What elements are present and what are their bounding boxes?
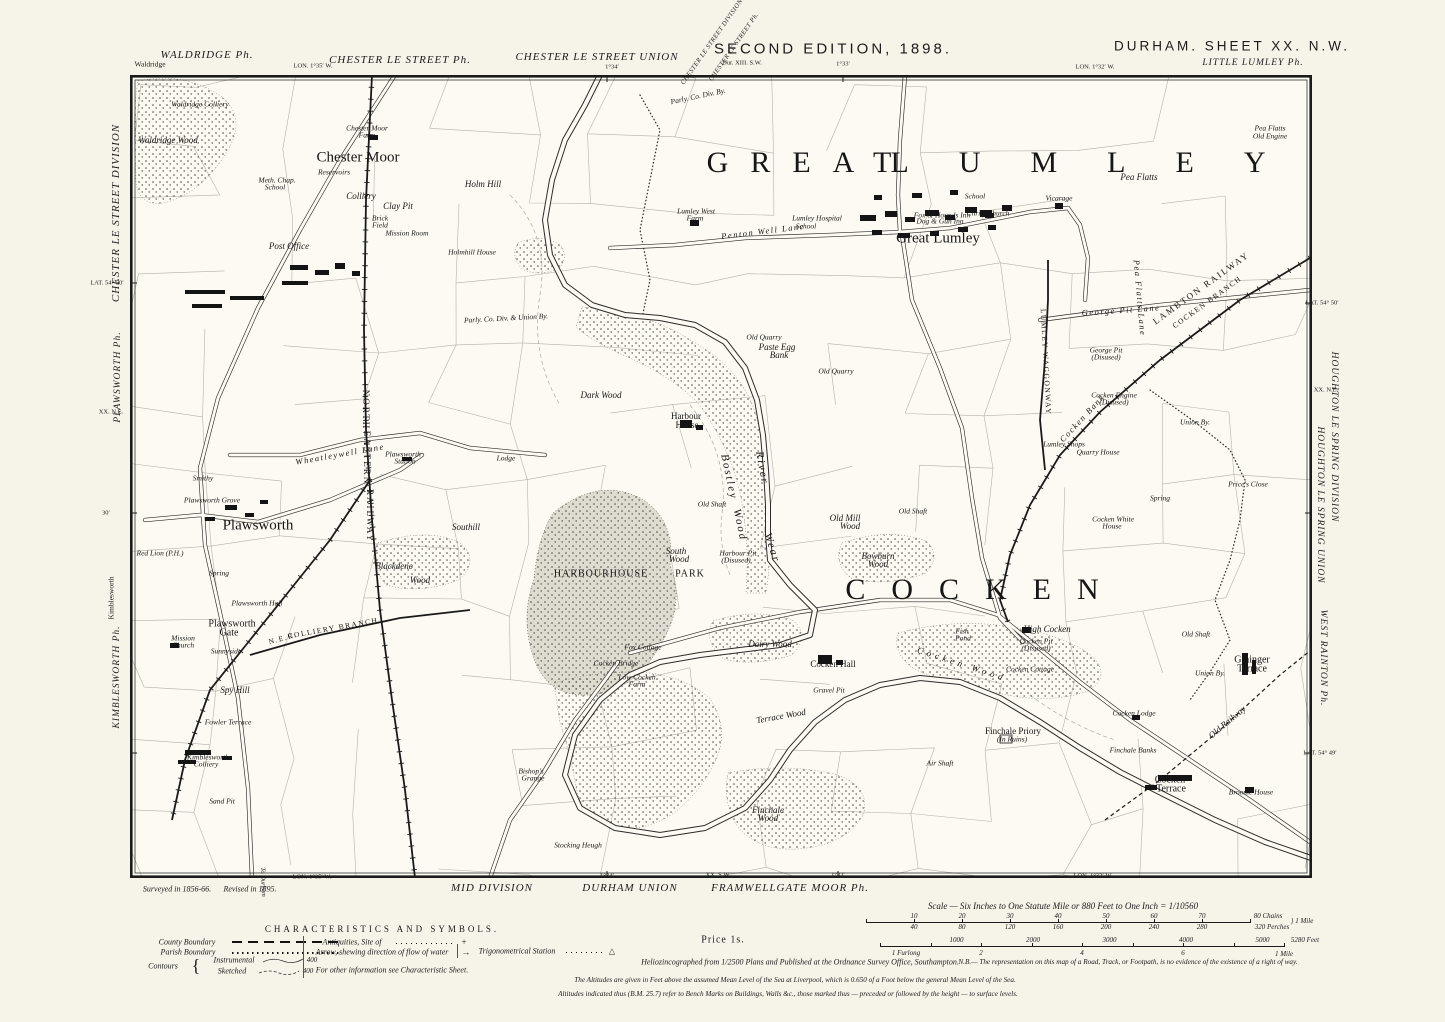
sheet-title: DURHAM. SHEET XX. N.W.: [1114, 39, 1350, 54]
graticule-ticks: [130, 75, 1312, 878]
legend-instrumental-label: Instrumental: [214, 956, 255, 965]
price-label: Price 1s.: [701, 935, 744, 946]
legend-antiquities-leader: [396, 943, 456, 944]
legend-contour-value-1: 400: [307, 956, 318, 964]
scale-label: 3000: [1103, 936, 1117, 944]
margin-left-tick-30: 30′: [102, 510, 110, 517]
margin-little-lumley: LITTLE LUMLEY Ph.: [1202, 58, 1303, 68]
scale-label: 30: [1007, 912, 1014, 920]
map-linework: [130, 75, 1312, 878]
scale-tick: [981, 943, 982, 947]
margin-chester-ph: CHESTER LE STREET Ph.: [329, 54, 471, 66]
scale-tick: [1133, 943, 1134, 947]
margin-adjoining-sheet: Dur. XIII. S.W.: [722, 60, 762, 67]
scale-label: 50: [1103, 912, 1110, 920]
footer-sheet-sw: XX. S.W.: [705, 872, 730, 879]
imprint-altitudes-1: The Altitudes are given in Feet above th…: [574, 976, 1016, 984]
scale-label: } 1 Mile: [1291, 917, 1314, 925]
roads-fill: [145, 75, 1310, 878]
margin-left-lat-top: LAT. 54° 50′: [90, 280, 123, 287]
scale-tick: [1082, 943, 1083, 947]
scale-label: 2: [979, 949, 983, 957]
scale-label: 160: [1053, 923, 1064, 931]
margin-waldridge-small: Waldridge: [134, 60, 165, 69]
legend-arrow-label: Arrow, shewing direction of flow of wate…: [316, 948, 449, 957]
margin-lon-right-top: LON. 1°32′ W.: [1075, 64, 1114, 71]
legend-antiquities-icon: +: [461, 937, 466, 947]
legend-contours-label: Contours: [148, 962, 178, 971]
footer-durham-union: DURHAM UNION: [582, 882, 677, 894]
scale-label: 4000: [1179, 936, 1193, 944]
scale-tick: [880, 943, 881, 947]
scale-tick: [1284, 943, 1285, 947]
legend-divider-1: [303, 936, 304, 978]
margin-chester-union: CHESTER LE STREET UNION: [515, 51, 678, 63]
scale-tick: [1250, 919, 1251, 923]
scale-tick: [866, 919, 867, 923]
map-border-outer: [131, 76, 1310, 876]
legend-title: CHARACTERISTICS AND SYMBOLS.: [265, 924, 499, 934]
margin-left-division: CHESTER LE STREET DIVISION: [110, 124, 122, 302]
scale-label: 80: [959, 923, 966, 931]
margin-left-sheet-ne: XX. N.E.: [99, 409, 124, 416]
scale-label: 5000: [1256, 936, 1270, 944]
scale-tick: [1234, 943, 1235, 947]
margin-waldridge-ph: WALDRIDGE Ph.: [161, 49, 254, 61]
legend-sketched-label: Sketched: [218, 967, 246, 976]
scale-caption: Scale — Six Inches to One Statute Mile o…: [928, 901, 1198, 911]
scale-label: 10: [911, 912, 918, 920]
margin-left-kimblesworth-ph: KIMBLESWORTH Ph.: [112, 625, 122, 728]
margin-right-west-rainton: WEST RAINTON Ph.: [1318, 610, 1328, 707]
footer-lon-left: LON. 1°35′ W.: [292, 874, 331, 881]
footer-lon-right: LON. 1°32′ W.: [1073, 873, 1112, 880]
margin-lon-left-top: LON. 1°35′ W.: [293, 63, 332, 70]
legend-arrow-icon: →: [462, 947, 471, 957]
scale-label: 320 Perches: [1255, 923, 1290, 931]
scale-label: 1 Mile: [1275, 950, 1293, 958]
scale-label: 6: [1181, 949, 1185, 957]
legend-divider-2: [457, 944, 458, 958]
legend-antiquities-label: Antiquities, Site of: [323, 938, 382, 947]
edition-title: SECOND EDITION, 1898.: [714, 41, 952, 58]
scale-label: 20: [959, 912, 966, 920]
scale-label: 70: [1199, 912, 1206, 920]
legend-contour-sketched-symbol: [258, 967, 300, 976]
scale-label: 120: [1005, 923, 1016, 931]
legend-trig-leader: [566, 952, 604, 953]
imprint-helio: Heliozincographed from 1/2500 Plans and …: [641, 958, 959, 967]
scale-label: 80 Chains: [1254, 912, 1283, 920]
legend-trig-icon: △: [609, 947, 615, 956]
scale-label: 280: [1197, 923, 1208, 931]
margin-right-division: HOUGHTON LE SPRING DIVISION: [1329, 352, 1339, 523]
imprint-nb: N.B.— The representation on this map of …: [958, 958, 1297, 966]
scale-label: 1 Furlong: [892, 949, 920, 957]
footer-tick-133: 1°33′: [831, 872, 845, 879]
margin-right-union: HOUGHTON LE SPRING UNION: [1315, 426, 1325, 583]
margin-left-kimblesworth-small: Kimblesworth: [107, 577, 116, 620]
footer-revised: Revised in 1895.: [223, 885, 276, 894]
margin-right-lat-top: LAT. 54° 50′: [1305, 300, 1338, 307]
footer-mid-division: MID DIVISION: [451, 882, 533, 894]
footer-framwellgate: FRAMWELLGATE MOOR Ph.: [711, 882, 869, 894]
margin-tick-133-top: 1°33′: [836, 61, 850, 68]
legend-county-label: County Boundary: [159, 938, 216, 947]
footer-tick-134: 1°34′: [600, 873, 614, 880]
legend-trig-label: Trigonometrical Station: [479, 947, 556, 956]
scale-label: 40: [1055, 912, 1062, 920]
scale-label: 200: [1101, 923, 1112, 931]
scale-label: 40: [911, 923, 918, 931]
legend-contours-brace: {: [192, 956, 201, 977]
scale-label: 60: [1151, 912, 1158, 920]
imprint-altitudes-2: Altitudes indicated thus (B.M. 25.7) ref…: [558, 990, 1018, 998]
legend-contour-instrumental-symbol: [262, 956, 304, 965]
scale-label: 240: [1149, 923, 1160, 931]
scale-label: 4: [1080, 949, 1084, 957]
margin-right-lat-bottom: LAT. 54° 49′: [1303, 750, 1336, 757]
legend-parish-label: Parish Boundary: [161, 948, 216, 957]
scale-label: 5280 Feet: [1291, 936, 1319, 944]
map-canvas: [130, 75, 1312, 878]
legend-other-info: For other information see Characteristic…: [316, 966, 468, 975]
footer-to-durham: To Durham: [259, 867, 267, 897]
map-border-inner: [135, 80, 1307, 873]
os-map-sheet: WALDRIDGE Ph. Waldridge LON. 1°35′ W. CH…: [0, 0, 1445, 1022]
scale-label: 1000: [950, 936, 964, 944]
scale-tick: [931, 943, 932, 947]
field-boundaries: [130, 75, 1312, 878]
footer-surveyed: Surveyed in 1856-66.: [143, 885, 211, 894]
margin-tick-134-top: 1°34′: [605, 64, 619, 71]
scale-label: 2000: [1026, 936, 1040, 944]
legend-contour-value-2: 400: [303, 967, 314, 975]
